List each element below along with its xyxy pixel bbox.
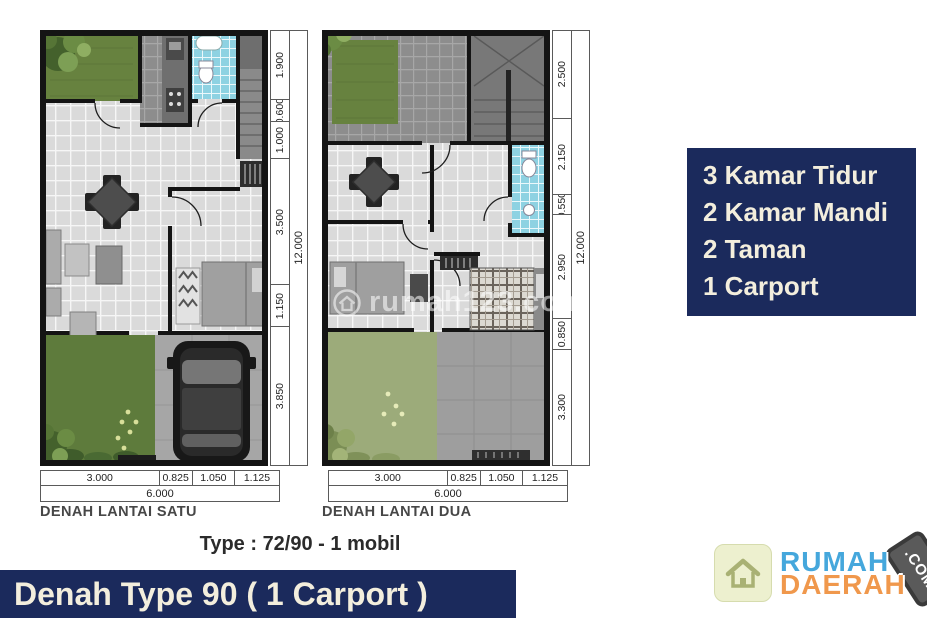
dimension-value: 0.850 — [553, 319, 571, 350]
dimension-value: 1.150 — [271, 285, 289, 327]
garden-top — [322, 30, 470, 143]
garden-top — [40, 31, 140, 101]
dimension-value: 2.150 — [553, 119, 571, 195]
floorplan-drawing-lantai-satu — [40, 30, 268, 466]
dimension-value: 1.900 — [271, 31, 289, 100]
title-bar: Denah Type 90 ( 1 Carport ) — [0, 570, 516, 618]
logo-wordmark: RUMAH DAERAH — [780, 546, 906, 601]
feature-box: 3 Kamar Tidur2 Kamar Mandi2 Taman1 Carpo… — [687, 148, 916, 316]
type-caption: Type : 72/90 - 1 mobil — [140, 533, 460, 556]
roof-terrace — [437, 332, 547, 463]
dimension-value: 1.050 — [193, 471, 235, 485]
plan-lantai-satu: 1.9000.6001.0003.5001.1503.850 12.000 3.… — [40, 30, 312, 560]
dimension-total-vertical: 12.000 — [290, 30, 308, 466]
bedroom — [176, 262, 265, 326]
dimension-value: 2.500 — [553, 31, 571, 119]
toilet-icon — [522, 159, 536, 177]
dimension-value: 1.125 — [523, 471, 567, 485]
feature-item: 2 Kamar Mandi — [703, 194, 900, 231]
dimension-value: 0.825 — [448, 471, 481, 485]
dimension-total-vertical: 12.000 — [572, 30, 590, 466]
garden-bottom — [40, 335, 155, 464]
dimension-value: 0.550 — [553, 195, 571, 215]
feature-item: 1 Carport — [703, 268, 900, 305]
stairs — [470, 33, 547, 143]
bed-icon — [470, 268, 534, 330]
dimension-value: 1.125 — [235, 471, 279, 485]
dimension-value: 3.300 — [553, 350, 571, 465]
page-title: Denah Type 90 ( 1 Carport ) — [14, 576, 428, 613]
bathroom — [192, 33, 236, 99]
dimension-total-horizontal: 6.000 — [40, 486, 280, 502]
dimension-total-horizontal: 6.000 — [328, 486, 568, 502]
wardrobe-icon — [240, 161, 265, 187]
dimension-strip-vertical: 2.5002.1500.5502.9500.8503.300 12.000 — [552, 30, 590, 466]
dimension-value: 3.000 — [329, 471, 448, 485]
dimension-strip-vertical: 1.9000.6001.0003.5001.1503.850 12.000 — [270, 30, 308, 466]
plan-label-lantai-dua: DENAH LANTAI DUA — [322, 504, 472, 520]
dimension-value: 2.950 — [553, 215, 571, 319]
dimension-value: 3.000 — [41, 471, 160, 485]
dimension-value: 0.825 — [160, 471, 193, 485]
feature-item: 2 Taman — [703, 231, 900, 268]
dimension-value: 3.500 — [271, 159, 289, 285]
bedroom-right — [470, 268, 547, 330]
dimension-value: 1.050 — [481, 471, 523, 485]
dimension-value: 3.850 — [271, 327, 289, 465]
logo-word-daerah: DAERAH — [780, 569, 906, 601]
plan-label-lantai-satu: DENAH LANTAI SATU — [40, 504, 197, 520]
floorplan-poster: 1.9000.6001.0003.5001.1503.850 12.000 3.… — [0, 0, 927, 618]
dimension-strip-horizontal: 3.0000.8251.0501.125 6.000 — [328, 470, 568, 502]
dimension-strip-horizontal: 3.0000.8251.0501.125 6.000 — [40, 470, 280, 502]
carport — [155, 335, 265, 463]
dimension-value: 0.600 — [271, 100, 289, 122]
floorplan-drawing-lantai-dua — [322, 30, 550, 466]
rumah-daerah-logo: RUMAH DAERAH .COM — [714, 543, 927, 603]
house-badge-icon — [714, 544, 772, 602]
dimension-value: 1.000 — [271, 122, 289, 159]
plan-lantai-dua: 2.5002.1500.5502.9500.8503.300 12.000 3.… — [322, 30, 594, 560]
car-icon — [167, 341, 256, 462]
bathroom — [512, 145, 547, 235]
kitchen — [140, 33, 188, 125]
feature-item: 3 Kamar Tidur — [703, 157, 900, 194]
stairs — [240, 33, 265, 159]
garden-bottom — [322, 332, 437, 465]
